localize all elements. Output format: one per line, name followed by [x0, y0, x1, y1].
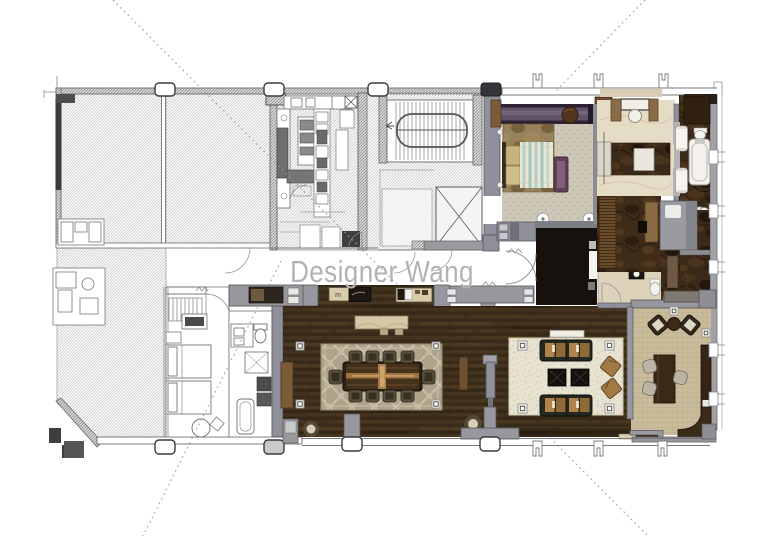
svg-text:m: m: [335, 292, 341, 299]
svg-text:Designer Wang: Designer Wang: [290, 255, 474, 290]
